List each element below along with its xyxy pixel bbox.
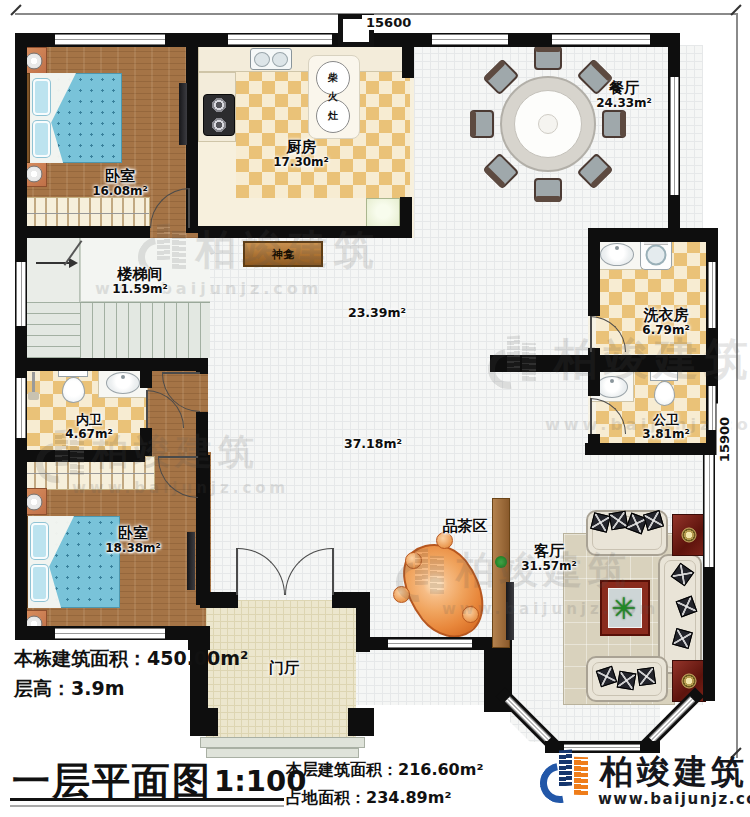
stairwell-landing	[20, 238, 80, 302]
window-laundry-right	[708, 262, 716, 328]
window-hall-bottom	[388, 639, 472, 648]
dining-chair	[534, 178, 562, 202]
entry-step-1	[200, 737, 365, 748]
wall-stair-bottom	[15, 358, 207, 371]
wardrobe-bedroom1	[22, 197, 150, 228]
foyer-column-right	[348, 708, 374, 736]
foyer-column-left	[190, 708, 218, 736]
tv-bedroom2	[187, 532, 195, 590]
window-bath-private-left	[16, 378, 26, 438]
watermark-text: 柏竣建筑	[196, 222, 380, 277]
watermark: 柏竣建筑 www.baijunjz.com	[140, 222, 380, 298]
dimension-right-label: 15900	[717, 404, 732, 476]
door-leaf-corridor	[162, 372, 200, 374]
sofa-pillow	[617, 671, 637, 691]
room-label-kitchen: 厨房 17.30m²	[273, 139, 329, 170]
company-website: www.baijunjz.com	[598, 790, 750, 808]
dining-chair	[534, 46, 562, 70]
floor-height-value: 3.9m	[71, 677, 124, 699]
wall-laundry-top	[588, 228, 718, 242]
floor-area-value: 216.60m²	[398, 760, 483, 779]
window-stair-left	[16, 262, 26, 326]
floor-plan-page: 15600 15900 柴 灶 火	[0, 0, 750, 817]
kitchen-sink	[250, 48, 292, 70]
room-label-bedroom1: 卧室 16.08m²	[92, 168, 148, 199]
entry-door-leaf-right	[332, 548, 334, 595]
room-label-foyer: 门厅	[269, 660, 299, 677]
watermark-text: 柏竣建筑	[92, 428, 289, 477]
laundry-sink	[600, 243, 634, 266]
pillow	[31, 565, 48, 601]
building-area-label: 本栋建筑面积：	[14, 647, 147, 669]
wood-stove-char-2: 火	[328, 90, 338, 104]
pillow	[33, 79, 50, 115]
building-area-value: 450.00m²	[147, 647, 248, 669]
watermark-url: www.baijunjz.com	[72, 479, 289, 497]
watermark-logo-icon	[398, 549, 450, 601]
room-label-stair: 楼梯间 11.59m²	[112, 266, 168, 297]
lamp-icon	[25, 165, 42, 182]
dining-chair	[602, 110, 626, 138]
wall-kitchen-right-upper	[402, 43, 414, 78]
room-label-bedroom2: 卧室 18.38m²	[105, 525, 161, 556]
window-living-right	[704, 455, 714, 567]
wall-bath-private-east-1	[140, 368, 152, 388]
wood-stove-char-1: 柴	[328, 71, 338, 85]
lamp-icon	[25, 52, 42, 69]
wall-left	[15, 33, 27, 640]
wall-laundry-west-1	[588, 240, 600, 316]
stair-treads-bottom	[80, 302, 210, 359]
watermark-text: 柏竣建筑	[554, 330, 750, 389]
company-logo-icon	[542, 750, 594, 802]
door-leaf-bath-private	[146, 390, 148, 428]
hall-upper-area-label: 23.39m²	[348, 306, 406, 320]
toilet-bowl	[62, 377, 85, 403]
entry-step-2	[206, 748, 359, 758]
floor-height-label: 层高：	[14, 677, 71, 699]
stair-arrow-head	[69, 258, 78, 268]
footprint-area-row: 占地面积：234.89m²	[286, 788, 451, 809]
wall-bedroom1-bottom	[15, 226, 150, 238]
title-underline	[10, 798, 284, 801]
room-label-tea-area: 品茶区	[443, 518, 488, 535]
side-table	[672, 514, 706, 556]
kitchen-counter-top	[198, 45, 412, 72]
watermark: 柏竣建筑 www.baijunjz.com	[490, 330, 750, 434]
rosette-icon	[682, 528, 697, 543]
window-dining-right	[670, 77, 679, 195]
window-dining-top-2	[552, 34, 650, 45]
wall-kitchen-right-lower	[400, 197, 412, 238]
tv-bedroom1	[179, 83, 187, 145]
wood-stove-char-3: 灶	[328, 109, 338, 123]
footprint-area-label: 占地面积：	[286, 788, 366, 807]
company-name: 柏竣建筑	[600, 750, 748, 795]
wall-living-top-right	[585, 443, 718, 455]
wall-foyer-top-left	[200, 592, 238, 608]
window-bedroom2-bottom	[55, 628, 165, 639]
window-bedroom1-top	[55, 34, 165, 45]
logo-building-orange	[574, 757, 588, 796]
hall-lower-area-label: 37.18m²	[344, 437, 402, 451]
room-label-bath-public: 公卫 3.81m²	[642, 413, 689, 442]
room-label-living: 客厅 31.57m²	[521, 543, 577, 574]
footprint-area-value: 234.89m²	[366, 788, 451, 807]
wall-bath-public-west-2	[588, 434, 600, 455]
sofa-pillow	[637, 667, 656, 686]
building-area-row: 本栋建筑面积：450.00m²	[14, 646, 248, 672]
watermark-url: www.baijunjz.com	[442, 600, 659, 618]
wood-stove-circle-2: 灶	[316, 99, 350, 133]
window-dining-top-1	[432, 34, 508, 45]
floor-area-label: 本层建筑面积：	[286, 760, 398, 779]
floor-area-row: 本层建筑面积：216.60m²	[286, 760, 483, 781]
room-label-bath-private: 内卫 4.67m²	[65, 413, 112, 442]
room-label-dining: 餐厅 24.33m²	[596, 80, 652, 111]
dining-table-center	[538, 114, 558, 134]
pillow	[33, 121, 50, 157]
bath-private-sink	[106, 372, 140, 394]
gas-stove	[203, 94, 235, 136]
mop-icon	[32, 372, 35, 398]
window-kitchen-top	[228, 34, 332, 45]
logo-building-navy	[559, 750, 572, 787]
watermark-logo-icon	[490, 336, 550, 396]
pillow	[31, 523, 48, 559]
dimension-top-label: 15600	[362, 15, 415, 30]
floor-height-row: 层高：3.9m	[14, 676, 124, 702]
stair-treads-left	[20, 302, 80, 358]
bed-bedroom1	[22, 73, 122, 163]
dining-chair	[470, 110, 494, 138]
room-label-laundry: 洗衣房 6.79m²	[642, 307, 689, 338]
title-underline-thin	[10, 805, 284, 807]
entry-door-leaf-left	[236, 548, 238, 595]
